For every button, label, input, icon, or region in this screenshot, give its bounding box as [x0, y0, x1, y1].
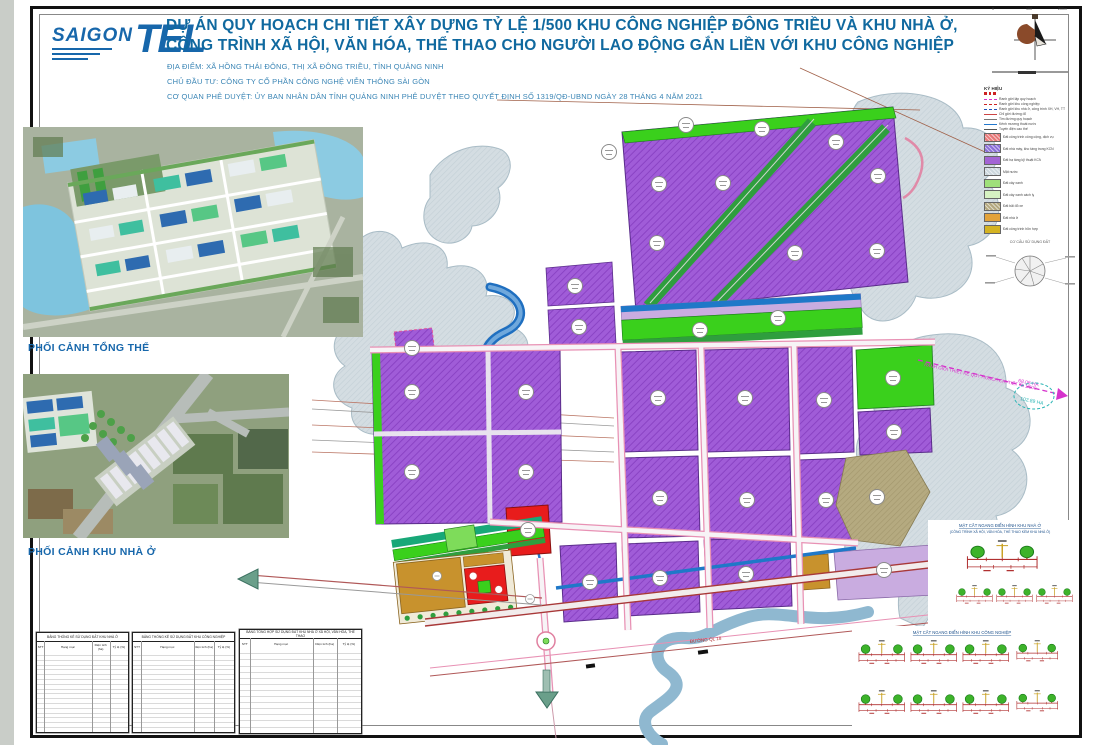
industrial-parcels-small-nw [546, 262, 616, 348]
legend-area-item: Đất công trình công cộng, dịch vụ [984, 132, 1076, 144]
project-approval: CƠ QUAN PHÊ DUYỆT: ỦY BAN NHÂN DÂN TỈNH … [167, 92, 703, 101]
logo-saigon-text: SAIGON [52, 26, 133, 45]
legend-area-item: Đất cây xanh cách ly [984, 189, 1076, 201]
plan-sheet: RANH GIỚI THIẾT KẾ QUY HOẠCH CHI TIẾT TL… [0, 0, 1100, 745]
logo-bar [52, 58, 88, 61]
industrial-block-north [622, 107, 908, 312]
xsec-housing-title-1: MẶT CẮT NGANG ĐIỂN HÌNH KHU NHÀ Ở [959, 523, 1041, 528]
legend-area-item: Mặt nước [984, 166, 1076, 178]
table-rows [133, 651, 234, 733]
industrial-block-west [372, 348, 562, 524]
perspective-housing-caption: PHỐI CẢNH KHU NHÀ Ở [28, 546, 156, 558]
scale-label-0: 0 [992, 7, 994, 11]
river-meander [645, 612, 868, 744]
legend-area-item: Đất hạ tầng kỹ thuật KCN [984, 155, 1076, 167]
legend-area-item: Đất cây xanh [984, 178, 1076, 190]
project-title: DỰ ÁN QUY HOẠCH CHI TIẾT XÂY DỰNG TỶ LỆ … [166, 16, 996, 57]
project-location: ĐỊA ĐIỂM: XÃ HỒNG THÁI ĐÔNG, THỊ XÃ ĐÔNG… [167, 62, 444, 71]
pie-chart-icon [984, 245, 1076, 297]
north-arrow-icon [1012, 14, 1058, 62]
project-investor: CHỦ ĐẦU TƯ: CÔNG TY CỔ PHẦN CÔNG NGHỆ VI… [167, 77, 430, 86]
perspective-overall-caption: PHỐI CẢNH TỔNG THỂ [28, 342, 149, 354]
scale-bar [990, 68, 1070, 80]
table-title: BẢNG TỔNG HỢP SỬ DỤNG ĐẤT KHU NHÀ Ở XÃ H… [240, 630, 361, 639]
cross-sections-housing: MẶT CẮT NGANG ĐIỂN HÌNH KHU NHÀ Ở (CÔNG … [928, 520, 1074, 628]
culvert-mark [698, 649, 708, 654]
legend-area-item: Đất công trình hỗn hợp [984, 224, 1076, 236]
legend-title: KÝ HIỆU [984, 86, 1076, 91]
legend-marker-row [984, 92, 1076, 95]
project-title-line2: CÔNG TRÌNH XÃ HỘI, VĂN HÓA, THỂ THAO CHO… [166, 36, 996, 56]
land-use-pie-diagram: CƠ CẤU SỬ DỤNG ĐẤT [984, 240, 1076, 302]
perspective-render-housing [23, 374, 289, 538]
logo-saigon-block: SAIGON [52, 26, 133, 60]
pie-title: CƠ CẤU SỬ DỤNG ĐẤT [984, 240, 1076, 244]
legend-area-item: Đất nhà ở [984, 212, 1076, 224]
xsec-housing-title-2: (CÔNG TRÌNH XÃ HỘI, VĂN HÓA, THỂ THAO KÈ… [950, 529, 1051, 534]
legend-area-item: Đất bãi đỗ xe [984, 201, 1076, 213]
land-use-table-summary: BẢNG TỔNG HỢP SỬ DỤNG ĐẤT KHU NHÀ Ở XÃ H… [239, 629, 362, 734]
xsec-industrial-title: MẶT CẮT NGANG ĐIỂN HÌNH KHU CÔNG NGHIỆP [913, 630, 1011, 635]
table-rows [37, 651, 128, 733]
legend-dot [984, 92, 987, 95]
culvert-mark-2 [586, 663, 595, 668]
legend-area-item: Đất nhà máy, kho tàng trong KCN [984, 143, 1076, 155]
land-use-table-industrial: BẢNG THỐNG KÊ SỬ DỤNG ĐẤT KHU CÔNG NGHIỆ… [132, 632, 235, 733]
saigontel-logo: SAIGON TEL [52, 22, 172, 74]
scale-label-mid: 100 [1026, 7, 1032, 11]
table-title: BẢNG THỐNG KÊ SỬ DỤNG ĐẤT KHU NHÀ Ở [37, 633, 128, 642]
legend-dot [989, 92, 992, 95]
logo-bar [52, 48, 112, 51]
land-use-table-housing: BẢNG THỐNG KÊ SỬ DỤNG ĐẤT KHU NHÀ Ở STTH… [36, 632, 129, 733]
legend-dot [993, 92, 996, 95]
legend-panel: KÝ HIỆU Ranh giới lập quy hoạch Ranh giớ… [984, 86, 1076, 235]
table-title: BẢNG THỐNG KÊ SỬ DỤNG ĐẤT KHU CÔNG NGHIỆ… [133, 633, 234, 642]
table-rows [240, 648, 361, 734]
logo-bar [52, 53, 100, 56]
scale-label-end: 200m [1058, 7, 1067, 11]
project-title-line1: DỰ ÁN QUY HOẠCH CHI TIẾT XÂY DỰNG TỶ LỆ … [166, 16, 996, 36]
perspective-render-overall [23, 127, 363, 337]
cross-sections-industrial: MẶT CẮT NGANG ĐIỂN HÌNH KHU CÔNG NGHIỆP [852, 626, 1074, 732]
